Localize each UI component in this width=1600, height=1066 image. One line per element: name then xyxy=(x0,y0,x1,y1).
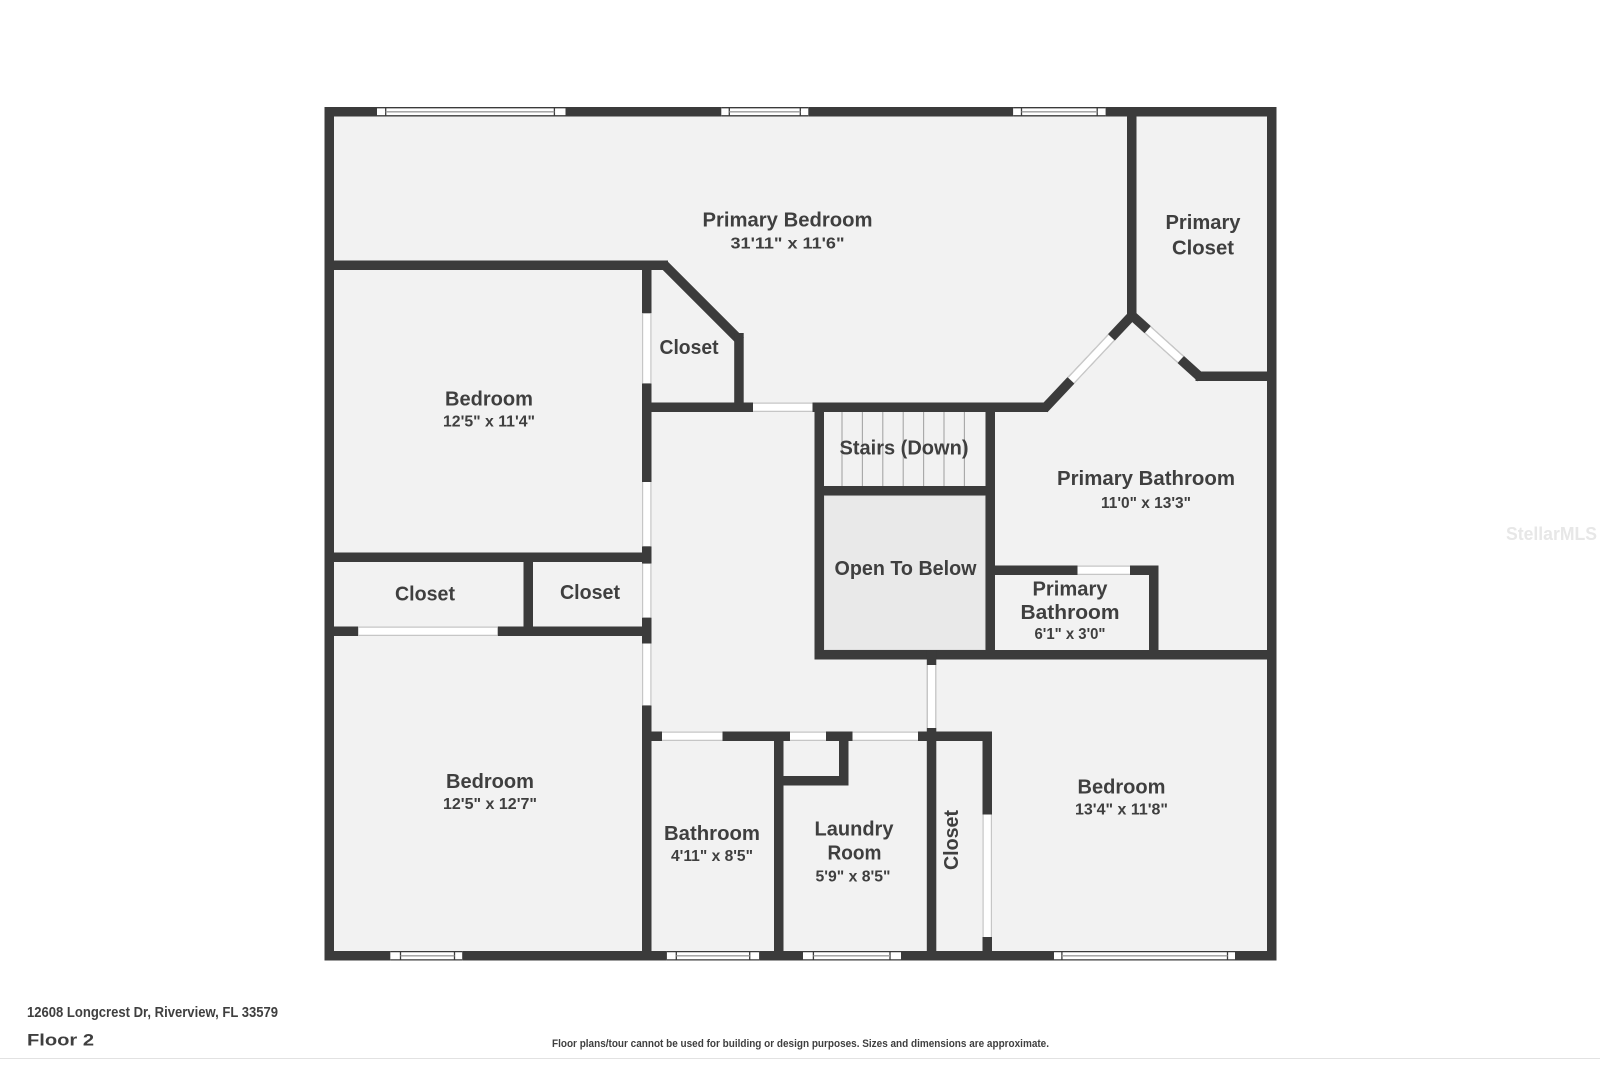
svg-text:Closet: Closet xyxy=(1172,238,1234,260)
svg-text:StellarMLS: StellarMLS xyxy=(1506,524,1597,544)
svg-text:Closet: Closet xyxy=(941,810,963,870)
svg-text:12'5" x 11'4": 12'5" x 11'4" xyxy=(443,414,535,431)
svg-text:4'11" x 8'5": 4'11" x 8'5" xyxy=(671,848,753,865)
svg-text:Room: Room xyxy=(828,843,882,865)
svg-text:Closet: Closet xyxy=(395,584,455,606)
svg-text:31'11" x 11'6": 31'11" x 11'6" xyxy=(731,236,845,253)
svg-text:Floor plans/tour cannot be use: Floor plans/tour cannot be used for buil… xyxy=(552,1038,1049,1050)
svg-text:Bedroom: Bedroom xyxy=(446,771,534,793)
svg-text:Primary Bathroom: Primary Bathroom xyxy=(1057,468,1235,490)
svg-text:Primary: Primary xyxy=(1033,579,1109,601)
svg-text:Bedroom: Bedroom xyxy=(445,389,533,411)
svg-text:Laundry: Laundry xyxy=(815,819,895,841)
svg-text:Primary: Primary xyxy=(1166,212,1242,234)
svg-text:Primary Bedroom: Primary Bedroom xyxy=(703,210,873,232)
svg-text:Bathroom: Bathroom xyxy=(664,823,760,845)
svg-text:13'4" x 11'8": 13'4" x 11'8" xyxy=(1075,802,1168,819)
svg-text:Open To Below: Open To Below xyxy=(835,558,977,580)
svg-text:12608 Longcrest Dr, Riverview,: 12608 Longcrest Dr, Riverview, FL 33579 xyxy=(27,1005,278,1021)
svg-text:Bedroom: Bedroom xyxy=(1078,777,1166,799)
svg-text:5'9" x 8'5": 5'9" x 8'5" xyxy=(816,869,891,886)
svg-text:Bathroom: Bathroom xyxy=(1021,602,1120,624)
svg-text:6'1" x 3'0": 6'1" x 3'0" xyxy=(1035,626,1106,643)
svg-text:Stairs (Down): Stairs (Down) xyxy=(840,438,969,460)
svg-text:11'0" x 13'3": 11'0" x 13'3" xyxy=(1101,495,1191,512)
svg-text:12'5" x 12'7": 12'5" x 12'7" xyxy=(443,796,537,813)
svg-text:Closet: Closet xyxy=(560,582,620,604)
svg-text:Closet: Closet xyxy=(660,337,719,359)
svg-text:Floor 2: Floor 2 xyxy=(27,1031,94,1050)
